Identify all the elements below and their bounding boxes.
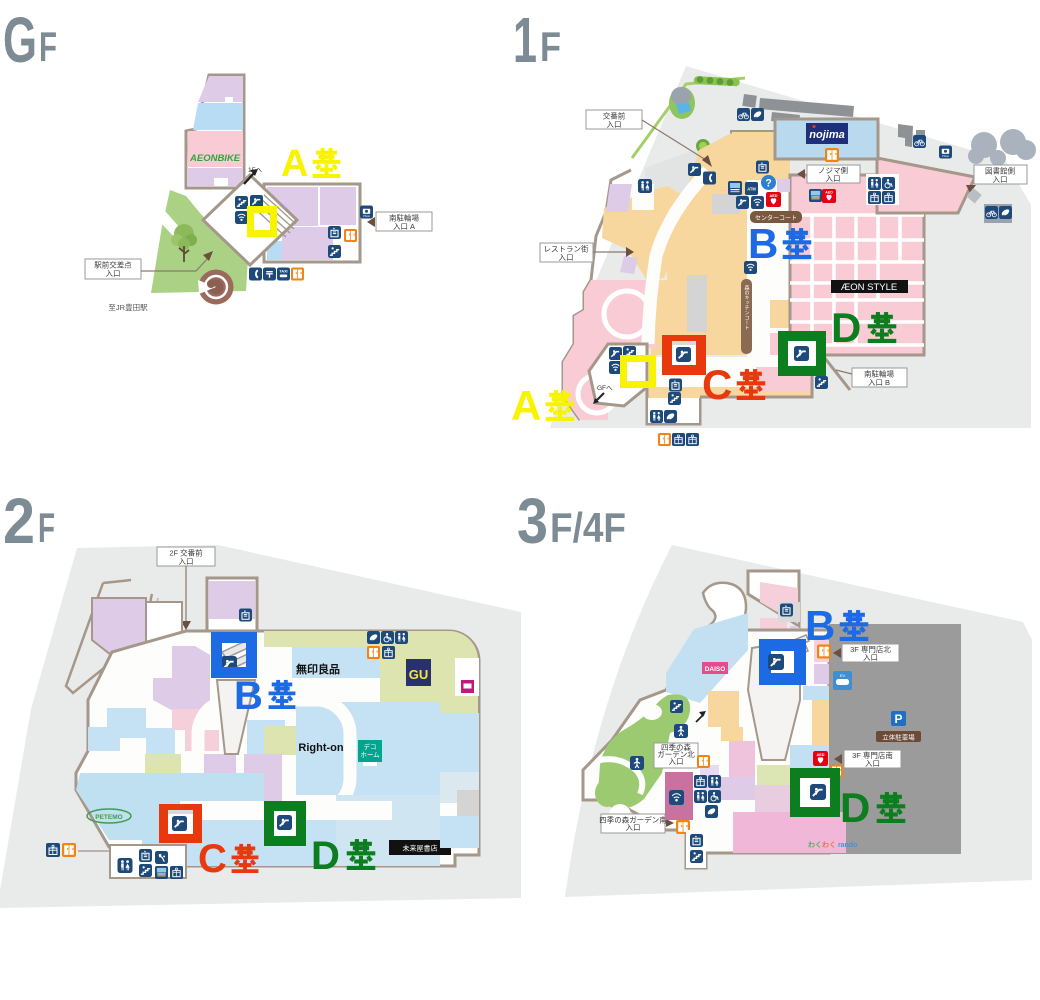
svg-text:1Fへ: 1Fへ	[248, 167, 263, 174]
svg-text:DAISO: DAISO	[705, 666, 726, 673]
svg-text:A: A	[511, 382, 541, 429]
svg-text:Right-on: Right-on	[298, 742, 343, 754]
svg-text:入口 B: 入口 B	[868, 378, 890, 387]
svg-text:2F 交番前: 2F 交番前	[169, 548, 203, 558]
svg-text:図書館側: 図書館側	[985, 166, 1015, 176]
svg-text:P: P	[894, 712, 902, 726]
svg-text:GU: GU	[409, 667, 429, 682]
svg-text:D: D	[840, 784, 870, 831]
svg-text:至JR豊田駅: 至JR豊田駅	[108, 302, 148, 312]
svg-text:デコ: デコ	[364, 742, 377, 751]
svg-text:立体駐車場: 立体駐車場	[882, 733, 915, 742]
svg-text:2: 2	[3, 485, 35, 557]
svg-text:駅前交差点: 駅前交差点	[94, 260, 132, 270]
svg-text:GFへ: GFへ	[597, 385, 613, 392]
svg-text:F: F	[540, 23, 561, 70]
svg-text:A: A	[281, 143, 308, 185]
svg-text:B: B	[748, 220, 778, 267]
svg-text:AEONBIKE: AEONBIKE	[189, 153, 241, 164]
svg-text:D: D	[311, 834, 340, 878]
svg-text:F: F	[39, 23, 57, 70]
svg-text:B: B	[234, 674, 263, 718]
svg-text:1: 1	[513, 4, 537, 76]
svg-text:未来屋書店: 未来屋書店	[403, 844, 438, 853]
svg-text:C: C	[702, 361, 732, 408]
svg-text:入口 A: 入口 A	[393, 222, 415, 231]
svg-text:3: 3	[517, 485, 548, 557]
svg-text:ÆON STYLE: ÆON STYLE	[841, 282, 898, 293]
svg-text:入口: 入口	[863, 653, 878, 662]
svg-text:入口: 入口	[179, 557, 194, 566]
svg-text:南駐輪場: 南駐輪場	[389, 213, 419, 223]
svg-text:入口: 入口	[106, 269, 121, 278]
svg-text:入口: 入口	[865, 759, 880, 768]
svg-text:ホーム: ホーム	[360, 751, 380, 759]
svg-text:F: F	[38, 504, 55, 551]
svg-text:入口: 入口	[669, 757, 684, 766]
svg-text:G: G	[3, 4, 37, 76]
svg-text:D: D	[831, 304, 861, 351]
svg-text:入口: 入口	[559, 253, 574, 262]
svg-text:B: B	[805, 602, 835, 649]
svg-text:入口: 入口	[626, 823, 641, 832]
svg-text:森のキッチンコート: 森のキッチンコート	[744, 284, 750, 330]
svg-text:C: C	[198, 837, 227, 881]
svg-text:入口: 入口	[993, 175, 1008, 184]
svg-text:nojima: nojima	[809, 129, 844, 141]
svg-text:PETEMO: PETEMO	[95, 814, 122, 821]
svg-text:無印良品: 無印良品	[296, 662, 340, 676]
svg-text:交番前: 交番前	[603, 111, 626, 121]
svg-text:わくわく rando: わくわく rando	[808, 841, 857, 849]
svg-text:入口: 入口	[607, 120, 622, 129]
svg-text:南駐輪場: 南駐輪場	[864, 369, 894, 379]
svg-text:F/4F: F/4F	[550, 504, 626, 551]
svg-text:EV: EV	[840, 673, 846, 678]
svg-text:入口: 入口	[826, 174, 841, 183]
svg-text:レストラン街: レストラン街	[544, 244, 589, 254]
